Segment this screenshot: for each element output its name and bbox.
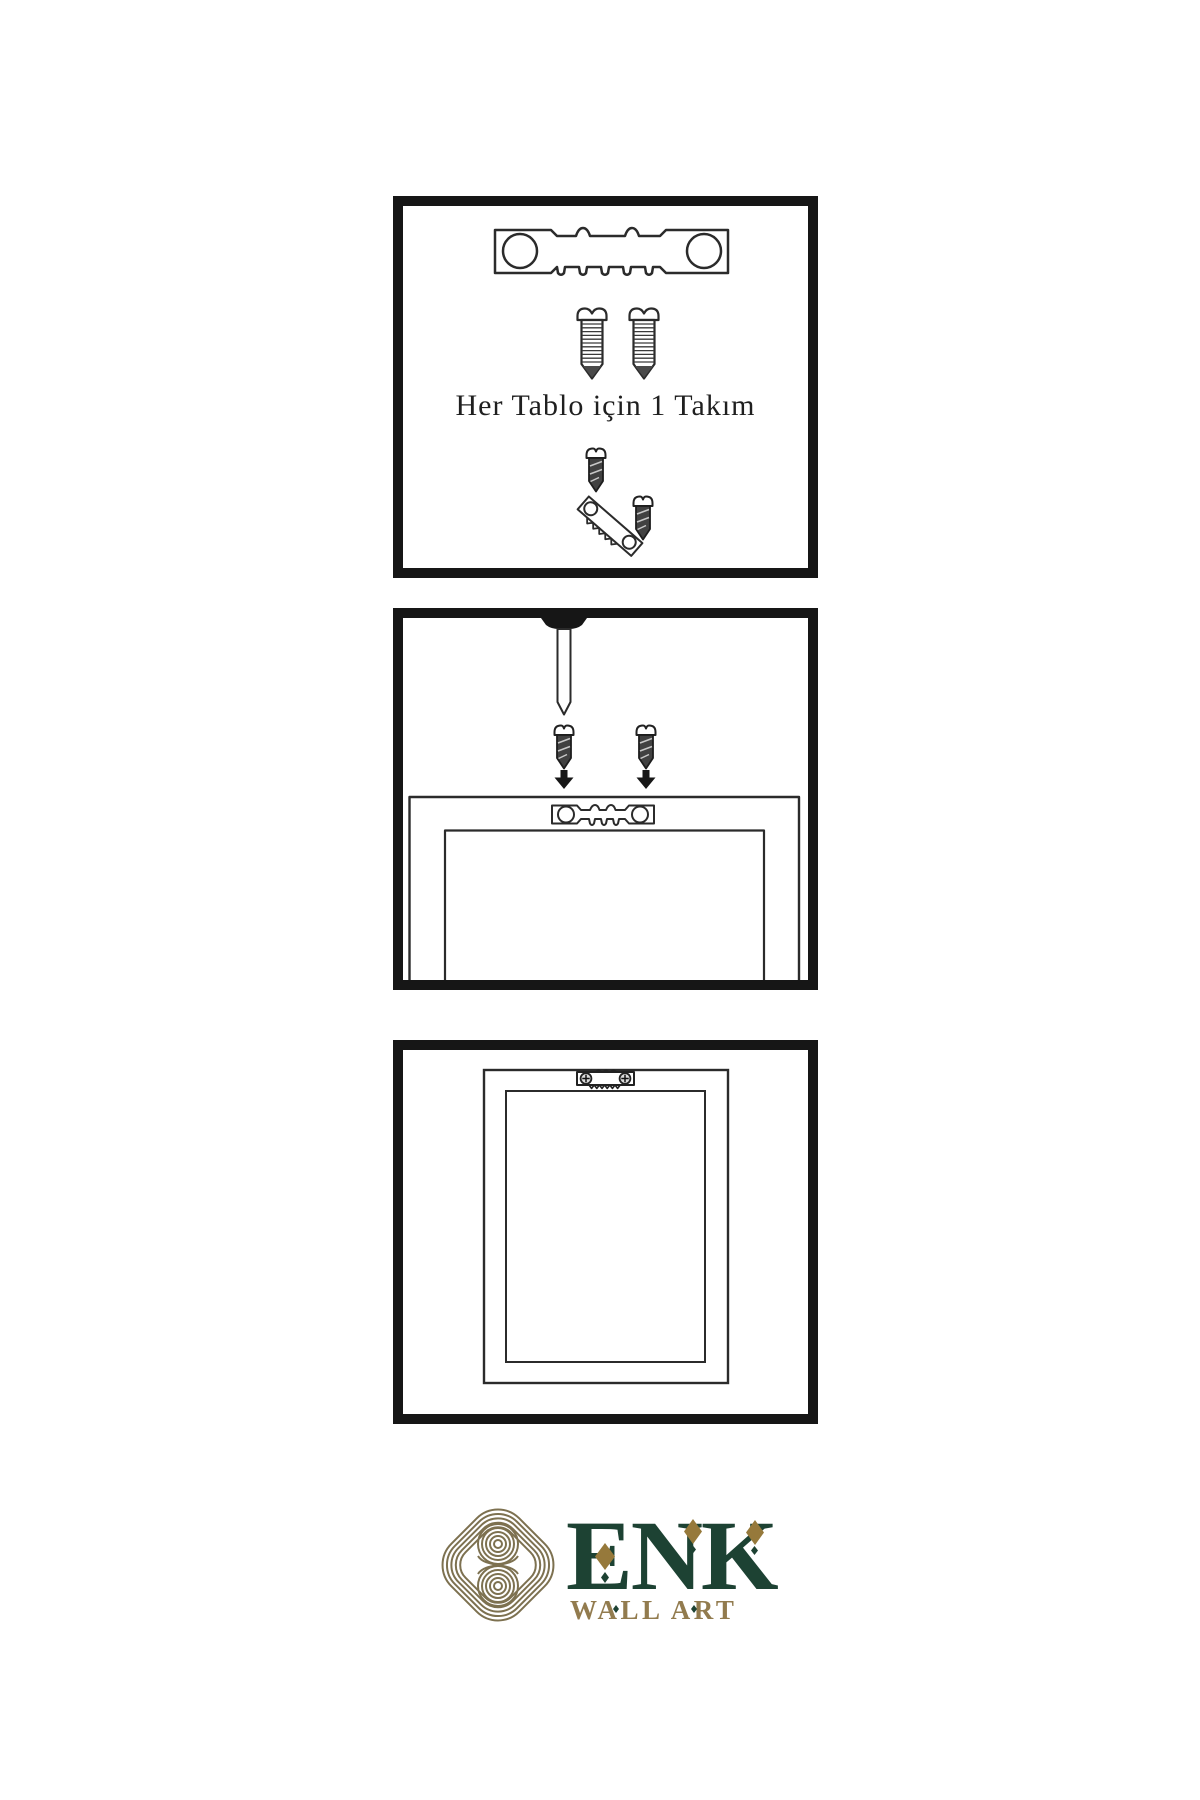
brand-knot-icon [433,1504,563,1626]
infographic-canvas: Her Tablo için 1 Takım [0,0,1200,1800]
arrow-down-icon [555,770,574,789]
screw-icon [578,309,607,379]
screw-icon [630,309,659,379]
brand-diamond-icon [595,1543,615,1570]
hardware-kit-illustration [403,206,808,568]
dark-screw-icon [555,726,574,769]
panel-hung-frame [393,1040,818,1424]
brand-diamond-dot-icon [601,1572,609,1583]
hung-frame-illustration [403,1050,808,1414]
dark-screw-icon [634,497,653,540]
brand-diamond-dot-icon [689,1545,696,1554]
dark-screw-icon [587,449,606,492]
kit-caption: Her Tablo için 1 Takım [403,389,808,423]
brand-diamond-dot-icon [751,1546,758,1555]
arrow-down-icon [637,770,656,789]
brand-subtitle: WALL ART [570,1595,737,1625]
angled-sawtooth-hanger-icon [575,496,643,559]
subtitle-diamond-dot-icon [691,1605,697,1613]
brand-diamond-icon [684,1519,702,1544]
dark-screw-icon [637,726,656,769]
panel-hardware-kit: Her Tablo için 1 Takım [393,196,818,578]
wall-frame-back-icon [484,1070,728,1383]
screw-into-hanger-demo [575,449,653,560]
install-step-illustration [403,618,808,980]
mounted-hanger-icon [577,1070,634,1088]
subtitle-diamond-dot-icon [613,1605,619,1613]
sawtooth-hanger-icon [495,228,728,275]
brand-diamond-icon [746,1520,764,1545]
brand-name: ENK [566,1506,777,1606]
nail-icon [541,618,587,715]
panel-install-step [393,608,818,990]
